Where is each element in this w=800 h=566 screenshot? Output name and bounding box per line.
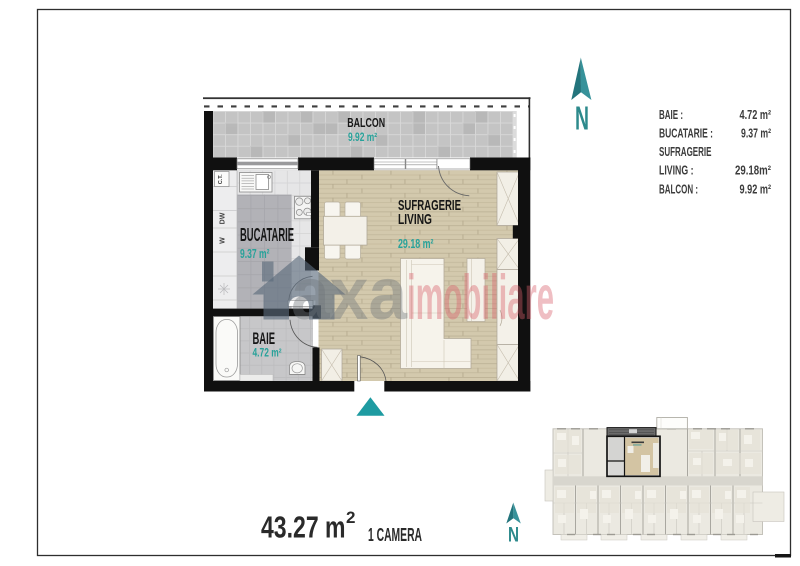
svg-text:4.72 m²: 4.72 m² [253,347,282,359]
svg-text:LIVING :: LIVING : [659,163,694,178]
svg-text:9.37 m²: 9.37 m² [741,125,771,140]
svg-text:SUFRAGERIE: SUFRAGERIE [659,144,712,159]
svg-text:axa: axa [291,252,408,335]
svg-text:BAIE: BAIE [253,330,276,348]
svg-text:BALCON :: BALCON : [659,181,698,196]
svg-text:W: W [220,237,227,244]
svg-text:N: N [575,100,589,137]
svg-text:imobiliare: imobiliare [407,263,554,333]
svg-text:29.18m²: 29.18m² [735,163,771,178]
svg-text:29.18 m²: 29.18 m² [398,237,434,251]
svg-text:1 CAMERA: 1 CAMERA [368,524,422,545]
svg-text:9.92 m²: 9.92 m² [348,130,377,144]
svg-text:4.72 m²: 4.72 m² [740,107,772,122]
svg-text:BALCON: BALCON [347,115,385,130]
svg-text:N: N [508,524,519,547]
svg-text:BUCATARIE: BUCATARIE [240,225,294,245]
svg-text:9.92 m²: 9.92 m² [740,181,772,196]
svg-text:DW: DW [220,212,227,224]
svg-text:2: 2 [346,508,355,527]
svg-text:9.37 m²: 9.37 m² [240,247,270,261]
svg-text:C.T.: C.T. [218,174,224,184]
svg-text:BAIE :: BAIE : [659,107,683,122]
svg-text:43.27 m: 43.27 m [261,510,346,545]
svg-text:BUCATARIE :: BUCATARIE : [659,125,713,140]
svg-text:LIVING: LIVING [398,211,432,228]
